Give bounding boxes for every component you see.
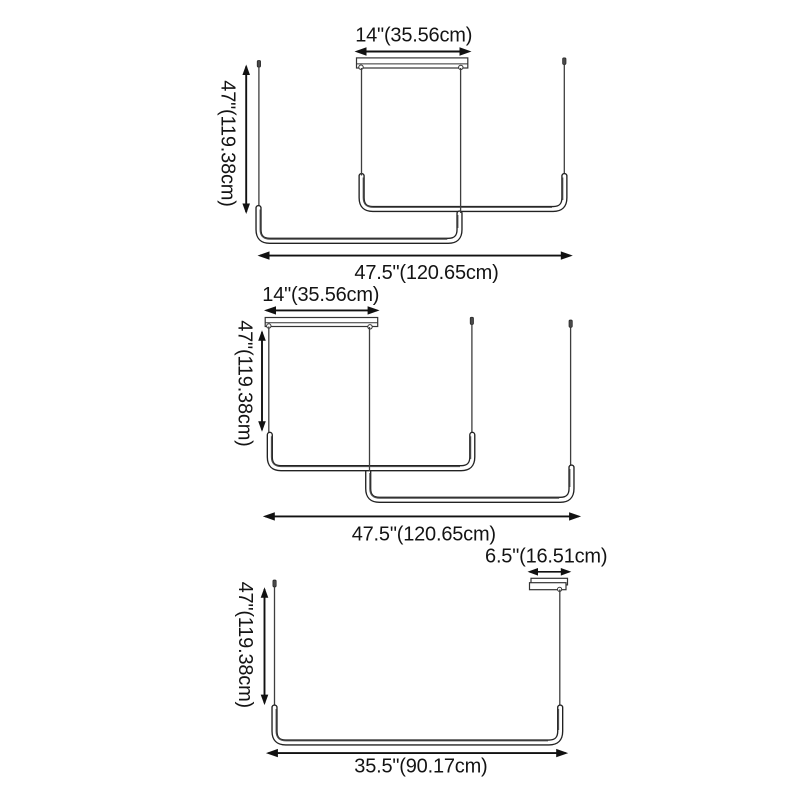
svg-text:47"(119.38cm): 47"(119.38cm)	[233, 320, 255, 446]
svg-text:6.5"(16.51cm): 6.5"(16.51cm)	[485, 545, 607, 567]
svg-text:14"(35.56cm): 14"(35.56cm)	[262, 284, 379, 306]
svg-text:35.5"(90.17cm): 35.5"(90.17cm)	[354, 755, 487, 777]
svg-text:47"(119.38cm): 47"(119.38cm)	[234, 582, 256, 708]
svg-text:47.5"(120.65cm): 47.5"(120.65cm)	[354, 262, 498, 284]
svg-text:14"(35.56cm): 14"(35.56cm)	[355, 25, 472, 47]
svg-text:47.5"(120.65cm): 47.5"(120.65cm)	[352, 524, 496, 546]
svg-text:47"(119.38cm): 47"(119.38cm)	[217, 80, 239, 206]
